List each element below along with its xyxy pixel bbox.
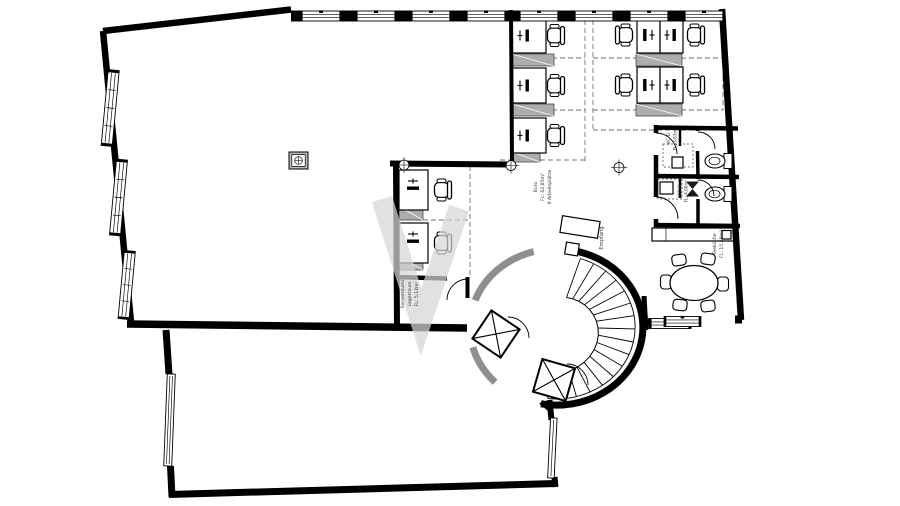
office-chair-icon [548,25,565,47]
office-chair-icon [688,24,705,46]
toilet-icon [705,154,732,169]
window [628,10,670,21]
svg-text:WC-D: WC-D [666,133,671,145]
svg-text:Teeküche: Teeküche [712,233,718,256]
window [465,10,507,21]
table-chair [718,277,729,291]
compass-marker-icon [289,152,308,169]
svg-text:FL: 62,85m²: FL: 62,85m² [540,173,546,201]
room-label-serverraum: Serverraum/ Lagerraum FL: 5,12m² [400,279,420,308]
window [300,10,342,21]
table-chair [700,300,715,313]
svg-text:FL: 15,48m²: FL: 15,48m² [719,230,725,258]
window [683,10,725,21]
svg-text:FL: 5,12m²: FL: 5,12m² [414,281,420,306]
reception-stool [565,242,580,256]
office-chair-icon [548,125,565,147]
svg-text:FL: 4,60m²: FL: 4,60m² [684,179,689,202]
svg-text:Serverraum/: Serverraum/ [400,279,406,308]
office-chair-icon [616,24,633,46]
table-chair [672,299,687,311]
floor-plan-svg: Büro FL: 62,85m² 9 Arbeitsplätze Serverr… [0,0,900,506]
table-chair [671,254,686,267]
svg-text:9 Arbeitsplätze: 9 Arbeitsplätze [547,169,553,204]
svg-text:Empfang: Empfang [599,226,605,249]
svg-text:WC-H: WC-H [677,185,682,197]
office-chair-icon [435,179,452,201]
room-label-empfang: Empfang [599,226,605,249]
office-divider-wall [511,10,512,162]
office-chair-icon [548,75,565,97]
workstation [512,18,565,153]
office-chair-icon [688,74,705,96]
office-chair-icon [616,74,633,96]
window [410,10,452,21]
window [573,10,615,21]
wc-bottom-wall [654,225,740,226]
kitchen-counter [652,228,738,241]
svg-text:FL: 3,63m²: FL: 3,63m² [673,127,678,150]
floor-plan-page: Büro FL: 62,85m² 9 Arbeitsplätze Serverr… [0,0,900,506]
window [355,10,397,21]
window [664,316,701,327]
svg-text:Lagerraum: Lagerraum [407,281,413,307]
svg-text:Büro: Büro [533,181,539,192]
toilet-icon [705,187,732,202]
window [518,10,560,21]
